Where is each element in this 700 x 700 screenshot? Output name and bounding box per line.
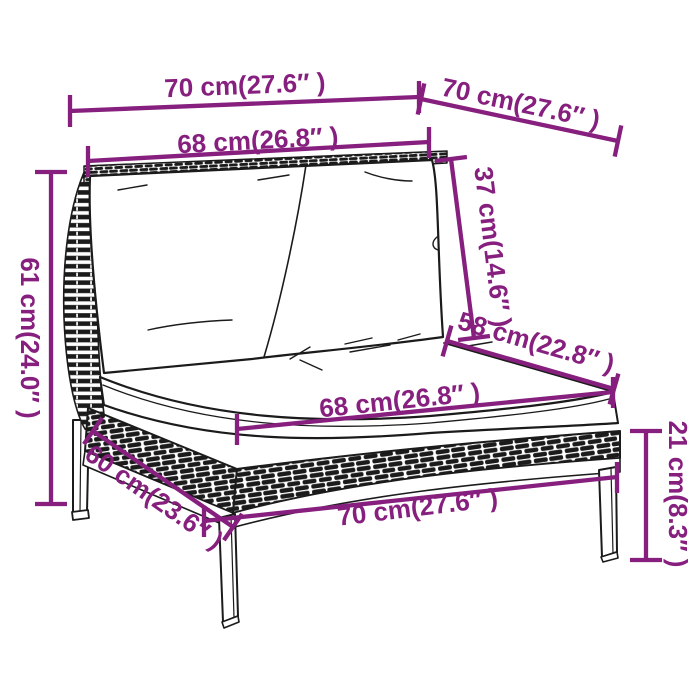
label-back-width: 68 cm(26.8″ ) (176, 121, 339, 159)
sofa-illustration (64, 151, 620, 628)
diagram-svg: 70 cm(27.6″ ) 70 cm(27.6″ ) 68 cm(26.8″ … (0, 0, 700, 700)
label-leg-height: 21 cm(8.3″ ) (663, 421, 693, 568)
dimension-diagram: 70 cm(27.6″ ) 70 cm(27.6″ ) 68 cm(26.8″ … (0, 0, 700, 700)
back-cushions (90, 160, 443, 373)
dim-leg-height (630, 431, 662, 560)
label-top-width: 70 cm(27.6″ ) (164, 67, 326, 103)
label-overall-height: 61 cm(24.0″ ) (15, 257, 45, 418)
label-top-depth: 70 cm(27.6″ ) (439, 72, 603, 135)
label-back-height: 37 cm(14.6″ ) (468, 165, 517, 329)
